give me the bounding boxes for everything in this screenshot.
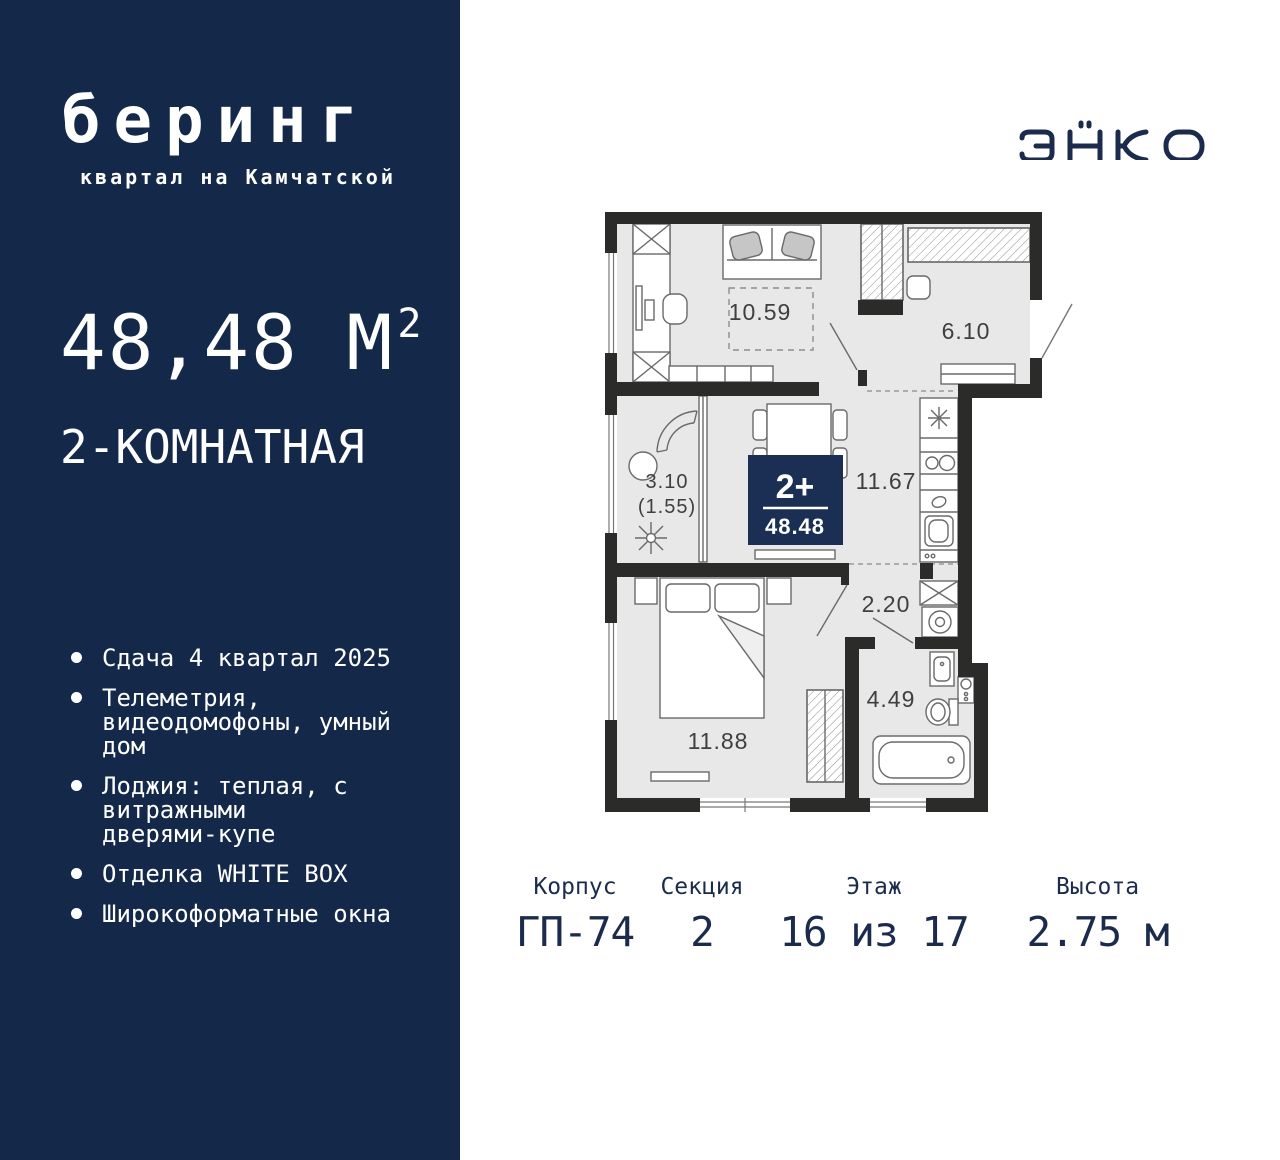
tv-console-icon [755,550,835,559]
monitor-icon [645,300,654,320]
room-label-bedroom: 11.88 [688,728,749,754]
washing-machine-icon [922,607,958,637]
badge-area: 48.48 [765,514,825,539]
toilet-icon [926,699,958,725]
vent-icon [928,407,950,429]
bed-icon [660,578,764,718]
window-icon [605,253,617,353]
room-label-loggia: 3.10 [646,471,689,493]
info-label: Высота [995,874,1200,900]
room-label-loggia-reduced: (1.55) [638,496,696,518]
info-section: Секция 2 [622,874,782,956]
room-label-living: 10.59 [729,299,792,325]
area-superscript: 2 [397,301,423,347]
feature-item: Отделка WHITE BOX [66,862,406,886]
brand-tagline: квартал на Камчатской [80,165,396,189]
feature-item: Широкоформатные окна [66,902,406,926]
window-icon [870,798,926,812]
floor-plan: 10.59 6.10 3.10 (1.55) 11.67 2.20 4.49 1… [605,212,1075,816]
plant-icon [635,522,667,554]
info-value: 2.75 м [995,908,1200,956]
apartment-badge: 2+ 48.48 [748,455,843,545]
feature-list: Сдача 4 квартал 2025 Телеметрия, видеодо… [66,646,406,942]
window-icon [700,798,790,812]
water-heater-icon [958,677,974,703]
room-label-corridor: 2.20 [862,591,911,617]
feature-item: Лоджия: теплая, с витражными дверями-куп… [66,774,406,846]
pouf-icon [907,276,930,299]
sideboard-icon [669,366,773,382]
kitchen-column-icon [920,398,958,562]
feature-item: Телеметрия, видеодомофоны, умный дом [66,686,406,758]
feature-item: Сдача 4 квартал 2025 [66,646,406,670]
desk-icon [636,286,642,330]
info-value: 2 [622,908,782,956]
room-label-bathroom: 4.49 [867,686,916,712]
apartment-type: 2-КОМНАТНАЯ [60,420,365,474]
info-height: Высота 2.75 м [995,874,1200,956]
cooktop-icon [926,457,938,469]
brand-logo: беринг [62,84,371,158]
developer-logo-icon: ЭНКО [1018,120,1218,160]
sofa-icon [723,225,821,279]
chair-icon [663,294,687,324]
tv-console-icon [651,772,709,781]
info-floor: Этаж 16 из 17 [768,874,980,956]
sidebar: беринг квартал на Камчатской 48,48 М2 2-… [0,0,460,1160]
info-label: Этаж [768,874,980,900]
shaft-icon [920,581,958,605]
window-icon [605,623,617,720]
room-label-kitchen: 11.67 [856,468,917,494]
area-unit: М [347,298,395,387]
area-value: 48,48 [60,298,299,387]
badge-rooms: 2+ [776,468,815,506]
bathroom-sink-icon [930,652,954,686]
apartment-area: 48,48 М2 [60,298,423,387]
room-label-hallway: 6.10 [942,318,991,344]
info-value: 16 из 17 [768,908,980,956]
nightstand-icon [767,578,791,604]
bathtub-icon [873,736,970,784]
info-label: Секция [622,874,782,900]
window-icon [605,415,617,533]
entrance-door-swing [1042,304,1072,358]
nightstand-icon [635,578,657,604]
